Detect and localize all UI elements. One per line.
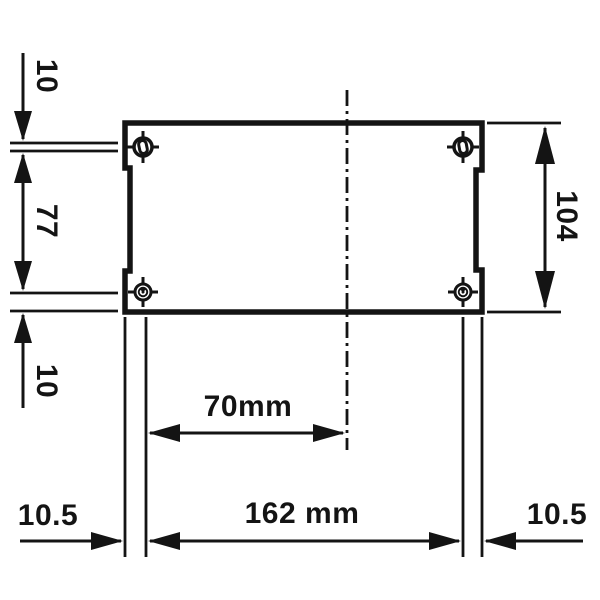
label-bottom-hole-offset: 10: [31, 364, 61, 398]
dim-horizontal-pitch-line: [148, 532, 461, 550]
mounting-hole-bottom-left-icon: [128, 277, 158, 307]
label-left-edge-to-hole: 10.5: [18, 501, 78, 531]
label-horizontal-hole-pitch: 162 mm: [245, 499, 360, 529]
dim-right-margin-line: [484, 532, 583, 550]
dim-center-to-hole-line: [148, 424, 345, 442]
label-housing-height: 104: [551, 190, 581, 242]
label-center-to-hole: 70mm: [204, 392, 293, 422]
dim-left-margin-line: [20, 532, 123, 550]
housing-outline: [125, 123, 482, 312]
mounting-hole-bottom-right-icon: [448, 277, 478, 307]
label-vertical-hole-pitch: 77: [31, 204, 61, 238]
mounting-hole-top-right-icon: [447, 131, 479, 163]
label-right-edge-to-hole: 10.5: [527, 500, 587, 530]
label-top-hole-offset: 10: [31, 59, 61, 93]
dimension-drawing: 10 77 10 104 70mm 10.5 162 mm 10.5: [0, 0, 600, 600]
mounting-hole-top-left-icon: [127, 131, 159, 163]
